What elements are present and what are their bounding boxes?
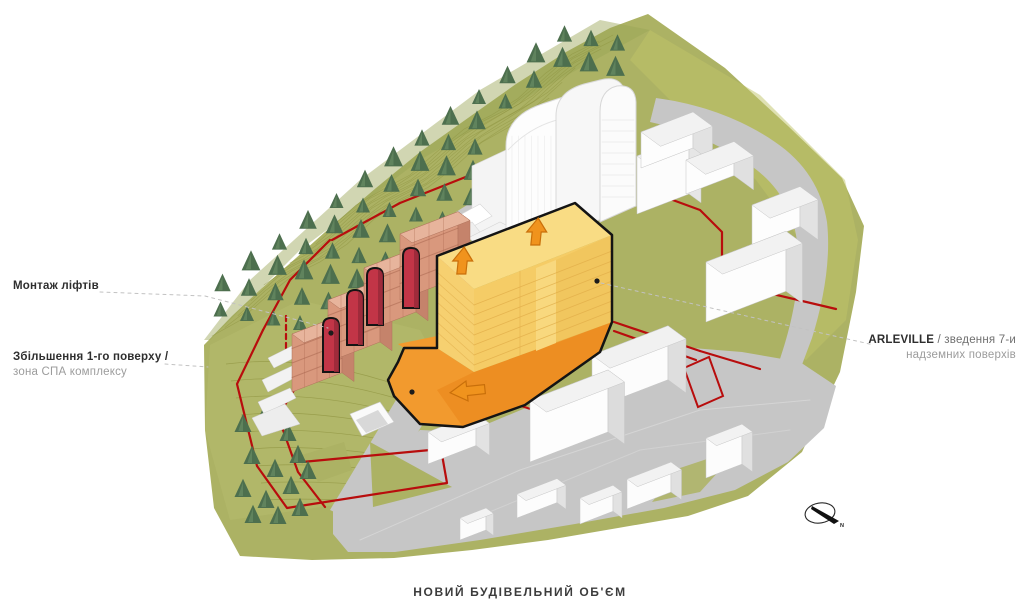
diagram-canvas: N Монтаж ліфтів Збільшення 1-го поверху … — [0, 0, 1024, 606]
label-arleville-rest: / зведення 7-и — [934, 334, 1016, 346]
label-ground-floor-line1: Збільшення 1-го поверху / — [13, 351, 168, 363]
north-compass-icon: N — [803, 501, 844, 529]
label-arleville-line2: надземних поверхів — [906, 349, 1016, 361]
compass-north-label: N — [840, 523, 844, 529]
page-title: НОВИЙ БУДІВЕЛЬНИЙ ОБ'ЄМ — [0, 585, 1024, 599]
label-arleville: ARLEVILLE / зведення 7-и надземних повер… — [868, 333, 1016, 363]
label-ground-floor-line2: зона СПА комплексу — [13, 366, 127, 378]
site-axonometric-illustration: N — [0, 0, 1024, 606]
label-arleville-name: ARLEVILLE — [868, 334, 934, 346]
label-elevators-text: Монтаж ліфтів — [13, 280, 99, 292]
label-ground-floor: Збільшення 1-го поверху / зона СПА компл… — [13, 350, 168, 380]
label-elevators: Монтаж ліфтів — [13, 279, 99, 294]
